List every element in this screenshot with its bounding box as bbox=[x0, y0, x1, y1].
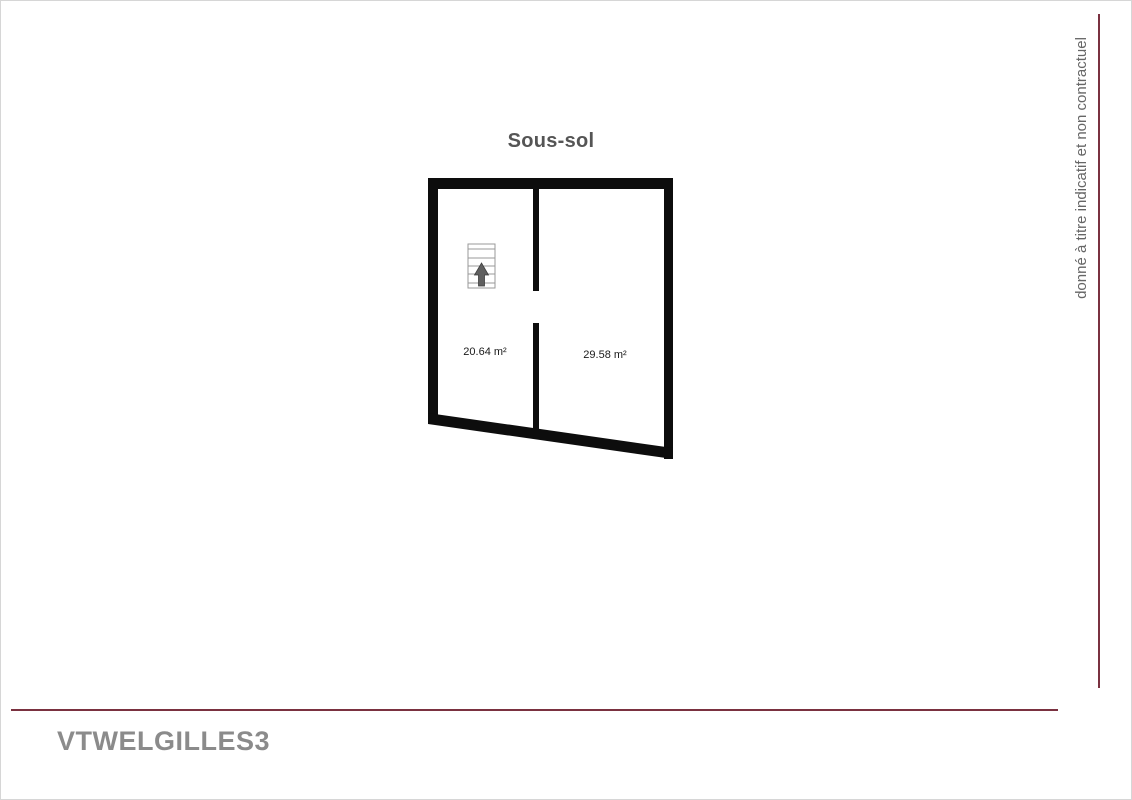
plan-walls bbox=[428, 178, 673, 459]
page-title: Sous-sol bbox=[428, 130, 674, 153]
wall-interior-lower bbox=[533, 323, 539, 434]
floor-plan-drawing: 20.64 m² 29.58 m² bbox=[428, 178, 674, 470]
wall-right bbox=[664, 178, 673, 459]
wall-interior-upper bbox=[533, 189, 539, 291]
stairs-icon bbox=[468, 244, 495, 288]
room-area-label-right: 29.58 m² bbox=[583, 349, 627, 361]
reference-watermark: VTWELGILLES3 bbox=[57, 726, 270, 757]
wall-bottom-slanted bbox=[428, 413, 673, 459]
wall-left bbox=[428, 178, 438, 421]
disclaimer-text: donné à titre indicatif et non contractu… bbox=[1073, 22, 1095, 314]
room-area-label-left: 20.64 m² bbox=[463, 346, 507, 358]
right-accent-line bbox=[1098, 14, 1100, 688]
wall-top bbox=[428, 178, 673, 189]
bottom-accent-line bbox=[11, 709, 1058, 711]
floor-plan-page: Sous-sol 20.64 m² 29.58 m² bbox=[0, 0, 1132, 800]
